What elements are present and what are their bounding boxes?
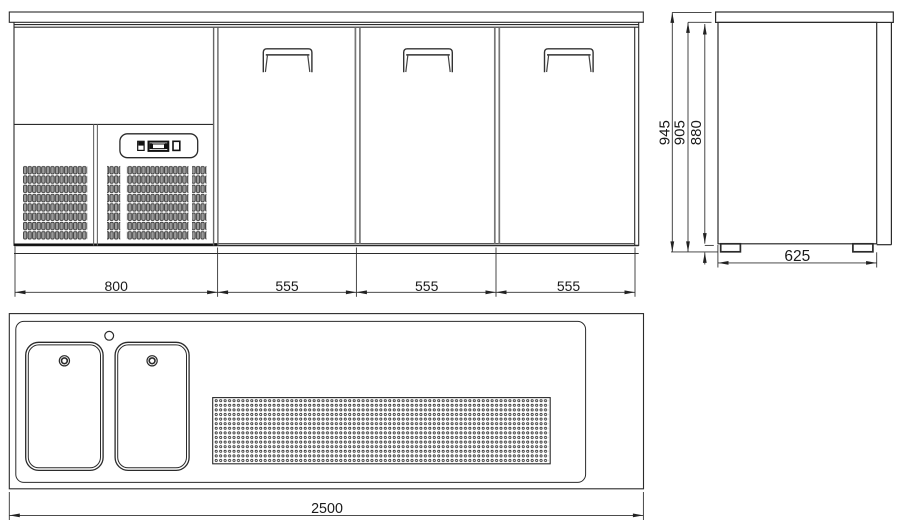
svg-text:625: 625 <box>784 248 810 265</box>
svg-text:880: 880 <box>688 120 705 145</box>
svg-text:555: 555 <box>275 278 299 294</box>
svg-text:800: 800 <box>105 278 129 294</box>
svg-text:555: 555 <box>415 278 439 294</box>
svg-text:2500: 2500 <box>311 501 343 517</box>
svg-text:905: 905 <box>671 120 688 145</box>
svg-text:555: 555 <box>557 278 581 294</box>
